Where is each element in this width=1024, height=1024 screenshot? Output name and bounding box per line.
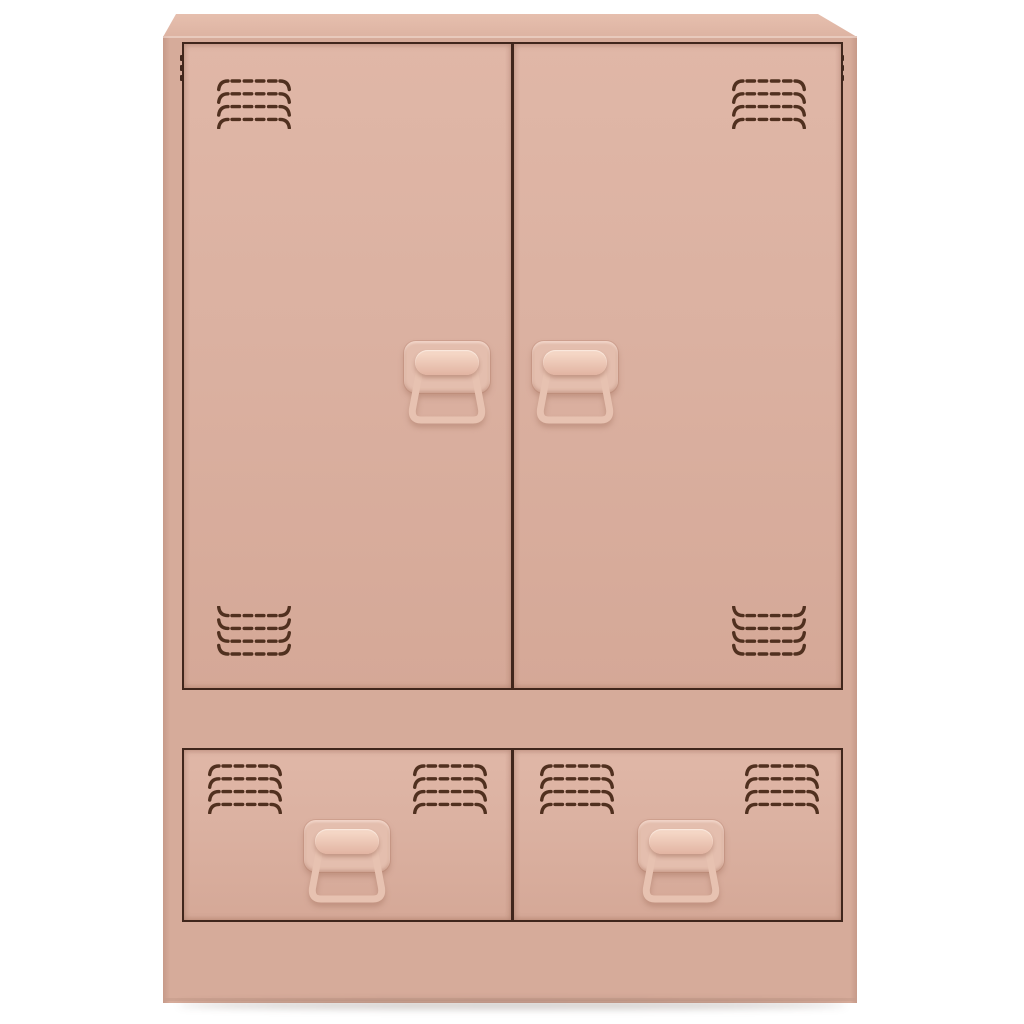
vent-drawer-right-1 [540,762,614,814]
cabinet-body [163,36,857,1003]
vent-door-left-bottom [217,606,291,658]
product-photo [0,0,1024,1024]
top-edge-highlight [163,36,857,38]
vent-drawer-right-2 [745,762,819,814]
vent-door-left-top [217,77,291,129]
handle-cylinder [315,829,379,854]
door-handle-left [403,341,491,433]
vent-door-right-top [732,77,806,129]
drawer-handle-left [303,820,391,912]
handle-cylinder [543,350,607,375]
vent-door-right-bottom [732,606,806,658]
cabinet-top [163,14,857,37]
handle-cylinder [649,829,713,854]
hinge-marks-left [180,55,183,82]
door-handle-right [531,341,619,433]
vent-drawer-left-2 [413,762,487,814]
handle-cylinder [415,350,479,375]
vent-drawer-left-1 [208,762,282,814]
doors-section [182,42,843,690]
drawer-handle-right [637,820,725,912]
floor-shadow [178,1001,846,1009]
hinge-marks-right [841,55,844,82]
